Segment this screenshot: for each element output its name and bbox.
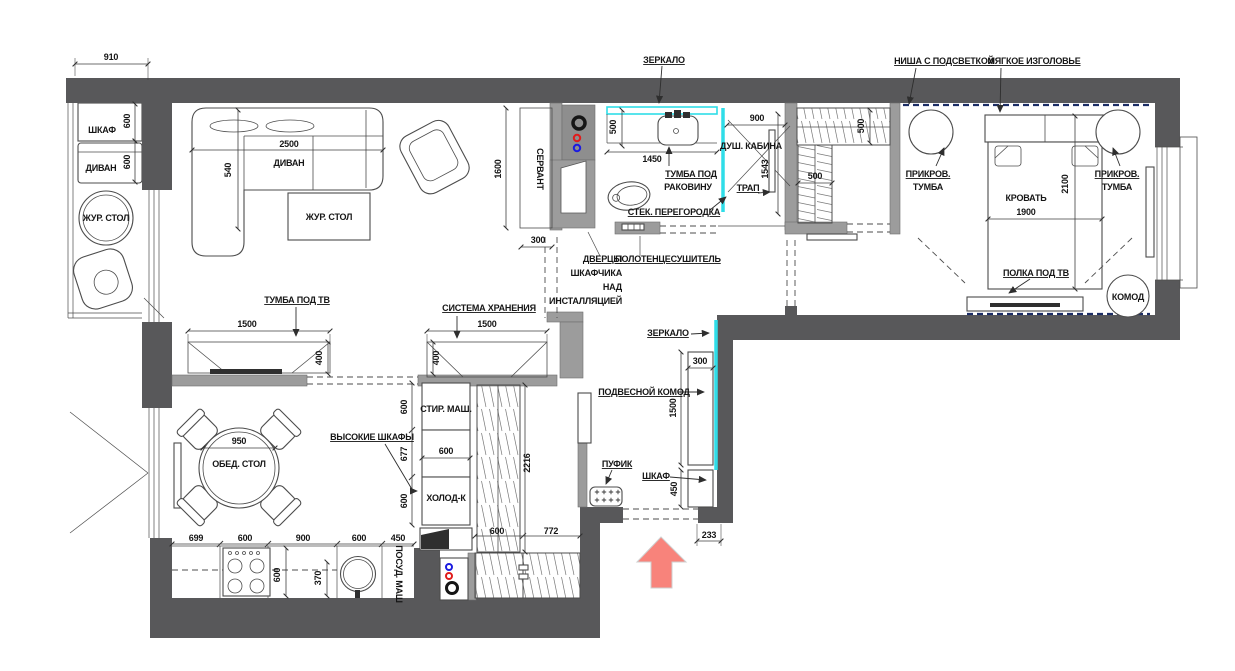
label-zerkalo-bath: ЗЕРКАЛО — [643, 55, 685, 65]
label-izgolovye: МЯГКОЕ ИЗГОЛОВЬЕ — [987, 56, 1080, 66]
kitchen-counter — [172, 546, 414, 598]
label-prikrov-left-1: ПРИКРОВ. — [906, 169, 951, 179]
kitchen-door-leaf — [578, 393, 591, 443]
entry-arrow-icon — [637, 537, 686, 588]
label-dim-2100: 2100 — [1060, 174, 1070, 193]
label-nisha: НИША С ПОДСВЕТКОЙ — [894, 55, 994, 66]
kitchen-radiator — [174, 443, 181, 508]
label-podvesnoy-komod: ПОДВЕСНОЙ КОМОД — [598, 386, 690, 397]
label-dim-600-stove: 600 — [272, 568, 282, 583]
hanging-dresser — [688, 352, 713, 465]
label-dim-1900: 1900 — [1016, 207, 1035, 217]
label-shkaf-hall: ШКАФ — [642, 471, 670, 481]
label-dim-950: 950 — [232, 436, 247, 446]
label-obed-stol: ОБЕД. СТОЛ — [212, 459, 266, 469]
storage-system — [427, 342, 547, 377]
label-living-divan: ДИВАН — [274, 158, 305, 168]
bedside-table-right — [1096, 110, 1140, 154]
label-dim-300-hall: 300 — [693, 356, 708, 366]
label-dim-370: 370 — [313, 571, 323, 586]
label-stir-mash: СТИР. МАШ. — [420, 404, 471, 414]
label-pufik: ПУФИК — [602, 459, 633, 469]
label-dim-2216: 2216 — [522, 453, 532, 472]
label-zerkalo-hall: ЗЕРКАЛО — [647, 328, 689, 338]
label-dim-600-holod: 600 — [399, 494, 409, 509]
tv-wall — [172, 375, 307, 386]
label-dim-900-shower: 900 — [750, 113, 765, 123]
label-dim-1543: 1543 — [760, 159, 770, 178]
shower-cabin — [728, 120, 790, 192]
corner-unit — [420, 528, 472, 550]
label-krovat: КРОВАТЬ — [1005, 193, 1047, 203]
floor-plan-page: 910ШКАФ600ДИВАН600ЖУР. СТОЛ2500ДИВАН540Ж… — [0, 0, 1235, 671]
label-dim-600-mid: 600 — [439, 446, 454, 456]
label-dim-600-k2: 600 — [352, 533, 367, 543]
toilet-installation — [561, 161, 586, 213]
living-room-furniture — [188, 108, 552, 377]
label-dim-772: 772 — [544, 526, 559, 536]
label-dim-500-closet-v: 500 — [856, 119, 866, 134]
label-dim-600-entry: 600 — [490, 526, 505, 536]
tv-shelf — [967, 297, 1083, 311]
label-dim-600-k1: 600 — [238, 533, 253, 543]
label-polka-pod-tv: ПОЛКА ПОД ТВ — [1003, 268, 1070, 278]
label-trap: ТРАП — [737, 183, 760, 193]
kitchen-window — [70, 408, 181, 538]
entry-cabinets — [475, 553, 580, 598]
label-dim-500-closet-h: 500 — [808, 171, 823, 181]
label-komod-bedroom: КОМОД — [1112, 292, 1145, 302]
tv-stand — [188, 342, 330, 374]
balcony-door-glazing — [149, 190, 159, 322]
label-dim-600-stir: 600 — [399, 400, 409, 415]
hallway-wardrobe — [688, 470, 713, 507]
label-servant: СЕРВАНТ — [535, 148, 545, 190]
bedroom-tv — [990, 303, 1060, 307]
label-dim-500-bath: 500 — [608, 120, 618, 135]
label-tumba-rakovinu-2: РАКОВИНУ — [664, 182, 712, 192]
tv — [210, 369, 282, 374]
label-dim-1450: 1450 — [642, 154, 661, 164]
bedroom-radiator — [1146, 167, 1154, 257]
label-dim-677: 677 — [399, 447, 409, 462]
kitchen-furniture — [172, 383, 580, 600]
label-dim-400-storage: 400 — [431, 351, 441, 366]
label-balcony-zhur-stol: ЖУР. СТОЛ — [82, 213, 129, 223]
label-tumba-rakovinu-1: ТУМБА ПОД — [665, 169, 717, 179]
label-dvertsy-3: НАД — [603, 282, 623, 292]
bathroom-sink — [658, 110, 698, 145]
label-dim-699: 699 — [189, 533, 204, 543]
bedside-table-left — [909, 110, 953, 154]
kitchen-sink — [341, 557, 376, 599]
label-sistema-hraneniya: СИСТЕМА ХРАНЕНИЯ — [442, 303, 536, 313]
label-balcony-divan: ДИВАН — [86, 163, 117, 173]
label-dim-400-tv: 400 — [314, 351, 324, 366]
label-prikrov-right-2: ТУМБА — [1102, 182, 1133, 192]
label-dim-600-shkaf: 600 — [122, 114, 132, 129]
closet-door-leaf — [807, 234, 857, 240]
label-polotentsesushitel: ПОЛОТЕНЦЕСУШИТЕЛЬ — [615, 254, 721, 264]
label-holod-k: ХОЛОД-К — [426, 493, 466, 503]
towel-dryer — [622, 224, 644, 230]
balcony-wardrobe — [78, 103, 142, 141]
label-dush-kabina: ДУШ. КАБИНА — [720, 141, 783, 151]
label-dim-540: 540 — [223, 163, 233, 178]
label-dvertsy-2: ШКАФЧИКА — [570, 268, 622, 278]
label-stek-peregorodka: СТЕК. ПЕРЕГОРОДКА — [628, 207, 721, 217]
label-dim-300-servant: 300 — [531, 235, 546, 245]
label-posud-mash: ПОСУД. МАШ — [394, 545, 404, 603]
floor-plan-drawing: 910ШКАФ600ДИВАН600ЖУР. СТОЛ2500ДИВАН540Ж… — [0, 0, 1235, 671]
label-prikrov-left-2: ТУМБА — [913, 182, 944, 192]
label-prikrov-right-1: ПРИКРОВ. — [1095, 169, 1140, 179]
label-dim-1500-storage: 1500 — [477, 319, 496, 329]
label-dim-450-hall: 450 — [669, 482, 679, 497]
label-balcony-shkaf: ШКАФ — [88, 125, 116, 135]
label-living-zhur-stol: ЖУР. СТОЛ — [305, 212, 352, 222]
label-dim-1500-hall: 1500 — [668, 398, 678, 417]
label-dim-900-k: 900 — [296, 533, 311, 543]
label-dim-1600: 1600 — [493, 159, 503, 178]
label-vysokie-shkafy: ВЫСОКИЕ ШКАФЫ — [330, 432, 414, 442]
stove — [223, 548, 270, 596]
label-tumba-pod-tv: ТУМБА ПОД ТВ — [264, 295, 330, 305]
closet — [797, 108, 890, 223]
balcony-chair — [70, 245, 136, 312]
washer-hookup — [440, 558, 468, 600]
label-dim-1500-tv: 1500 — [237, 319, 256, 329]
closet-hanging-rail — [797, 108, 890, 145]
label-dvertsy-4: ИНСТАЛЛЯЦИЕЙ — [549, 295, 622, 306]
bathroom-mirror — [607, 107, 717, 114]
pouf — [590, 487, 622, 506]
armchair — [396, 116, 474, 198]
label-dim-600-divan: 600 — [122, 155, 132, 170]
label-dim-233: 233 — [702, 530, 717, 540]
label-dim-2500: 2500 — [279, 139, 298, 149]
label-dim-910: 910 — [104, 52, 119, 62]
label-dim-450-k: 450 — [391, 533, 406, 543]
bedroom-window — [1155, 137, 1197, 288]
